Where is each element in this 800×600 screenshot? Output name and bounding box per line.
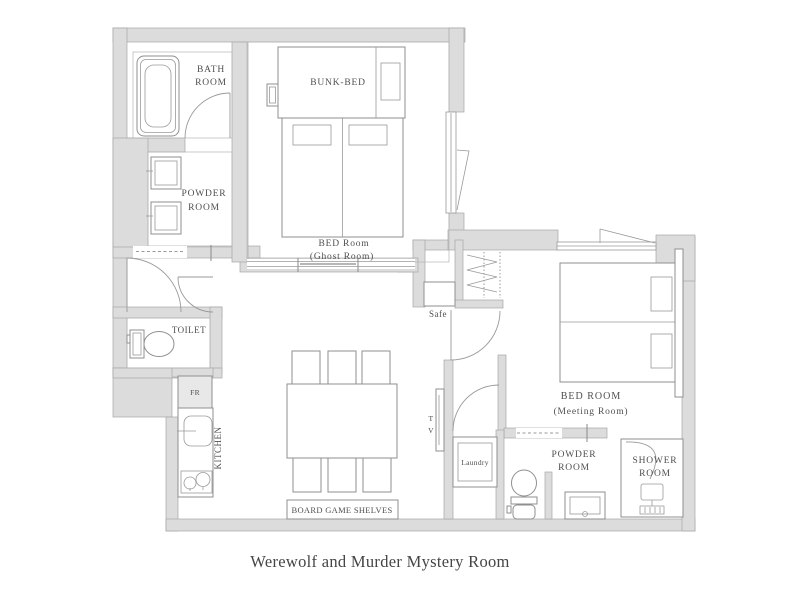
bath-room-label: ROOM [195, 78, 227, 88]
powder1-sinks [146, 157, 181, 234]
wall-tv [444, 360, 453, 519]
toilet-label: TOILET [172, 325, 206, 335]
closet [467, 252, 500, 298]
laundry-label: Laundry [461, 458, 489, 467]
toilet-knob [507, 506, 511, 513]
bathtub-icon [137, 56, 179, 136]
ghost-window-casement [457, 150, 469, 210]
chair [292, 351, 320, 384]
shower-room-label: SHOWER [633, 456, 678, 466]
bath-room-label: BATH [197, 65, 225, 75]
kitchen-counter [178, 408, 213, 497]
wall-closet-bottom [455, 300, 503, 308]
wall-left-lower [166, 417, 178, 531]
ghost-room-label: (Ghost Room) [310, 251, 374, 262]
powder-room1-label: ROOM [188, 203, 220, 213]
wall-bath-divider [232, 42, 248, 262]
wall-toilet-right [210, 307, 222, 373]
board-game-shelves-label: BOARD GAME SHELVES [292, 505, 393, 515]
bath-door-arc [185, 93, 230, 138]
wall-closet-left [455, 240, 463, 303]
powder-room1-label: POWDER [182, 189, 227, 199]
meeting-room-label: (Meeting Room) [554, 406, 629, 417]
entry-doors [127, 258, 213, 312]
meeting-window-casement [600, 229, 655, 243]
bathtub-outer [137, 56, 179, 136]
wall-ghost-right-upper [449, 28, 464, 112]
chair [362, 351, 390, 384]
wall-powder1-left [113, 138, 148, 247]
meeting-door-arc [451, 311, 500, 360]
table [287, 384, 397, 458]
shower-room-label: ROOM [639, 469, 671, 479]
toilet-bowl [512, 470, 537, 496]
tv-label: T [429, 414, 434, 423]
fridge-label: FR [190, 388, 200, 397]
tv-screen [436, 389, 444, 451]
wall-top [113, 28, 465, 42]
safe-box [424, 282, 455, 306]
bath-door [185, 93, 230, 138]
meeting-room-label: BED ROOM [561, 391, 622, 402]
meeting-door [451, 310, 500, 360]
safe-label: Safe [429, 309, 447, 319]
entry-door-arc [127, 258, 181, 312]
toilet-tank [130, 330, 144, 358]
wall-powder2-divider [545, 472, 552, 519]
hall-door-arc [453, 385, 499, 431]
chair [328, 458, 356, 492]
bed [560, 263, 677, 382]
tv-icon [436, 389, 444, 451]
sink-icon [151, 202, 181, 234]
toilet-icon [127, 330, 174, 358]
toilet-bowl [144, 332, 174, 357]
wall-ghost-meeting [448, 230, 558, 250]
page-title: Werewolf and Murder Mystery Room [250, 552, 509, 571]
wall-meeting-left [498, 355, 506, 432]
kitchen-label: KITCHEN [213, 427, 223, 470]
floor-plan: BATH ROOM POWDER ROOM BUNK-BED BED Room … [0, 0, 800, 600]
sink-icon [151, 157, 181, 189]
meeting-twin-beds [560, 249, 683, 397]
sink-icon [565, 492, 605, 519]
powder2-sink-icon [565, 492, 605, 519]
chair [328, 351, 356, 384]
dining-set [287, 351, 397, 492]
toilet-tank [513, 505, 535, 519]
tv-label: V [428, 426, 434, 435]
bed-ledge [675, 249, 683, 397]
toilet-handle [127, 335, 130, 343]
wall-toilet-top [113, 307, 222, 318]
chair [293, 458, 321, 492]
ghost-room-label: BED Room [318, 239, 369, 249]
wall-safe-left [413, 240, 425, 307]
chair [363, 458, 391, 492]
hanger-rail-icon [467, 255, 497, 292]
wall-bottom [166, 519, 695, 531]
ghost-twin-beds [282, 118, 403, 237]
powder-room2-label: ROOM [558, 463, 590, 473]
bunk-bed-label: BUNK-BED [310, 78, 365, 88]
toilet2-icon [507, 470, 537, 519]
powder-room2-label: POWDER [552, 450, 597, 460]
windows [446, 112, 656, 250]
toilet-seat-band [511, 497, 537, 504]
